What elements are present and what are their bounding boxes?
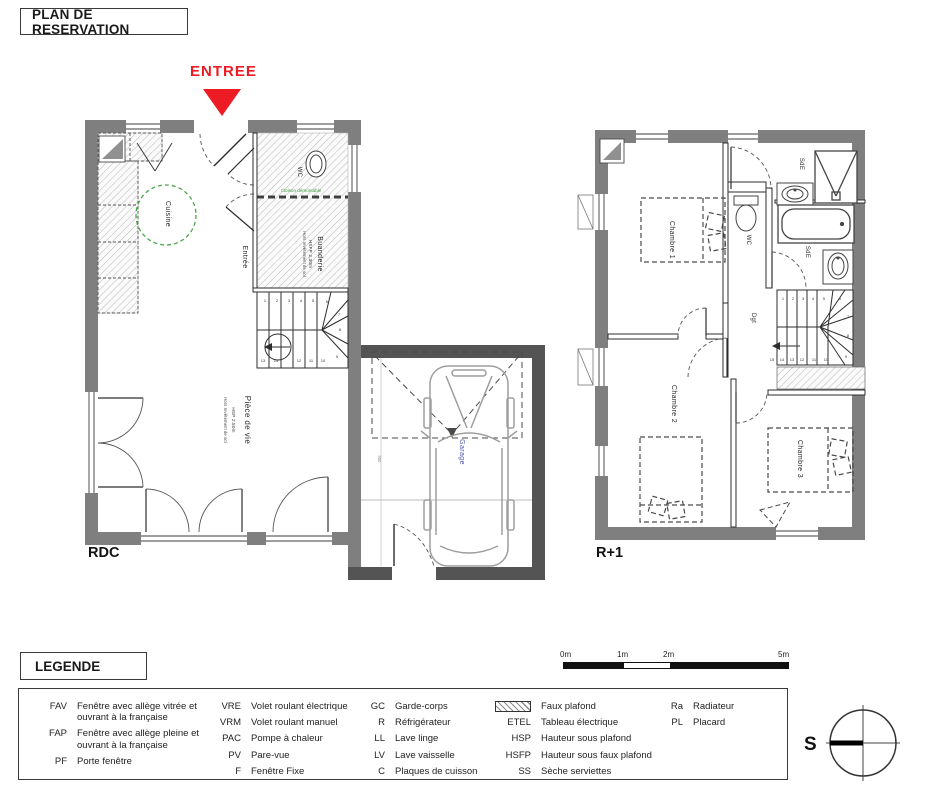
room-label-garage: Garage <box>458 439 465 465</box>
room-label-dgt: Dgt <box>750 313 756 323</box>
legend-abbr: Ra <box>661 701 683 712</box>
rdc-stairs: 1234567891011121314 <box>257 292 348 368</box>
scale-label-1m: 1m <box>617 650 628 659</box>
r1-plan: 123456789101112131415 <box>578 129 865 561</box>
legend-abbr: VRM <box>201 717 241 728</box>
buanderie-hsfp-note: HSFP 2.30m <box>308 240 313 268</box>
rdc-plan: Cloison démontable <box>84 119 545 581</box>
legend-abbr: FAP <box>33 728 67 750</box>
legend-abbr: SS <box>481 766 531 777</box>
legend-abbr: VRE <box>201 701 241 712</box>
legend-column-4: Faux plafond ETELTableau électrique HSPH… <box>481 701 691 777</box>
garage-interior <box>361 352 532 566</box>
r1-wc-toilet <box>734 196 758 231</box>
floor-label-rdc: RDC <box>88 545 120 561</box>
compass-south-label: S <box>804 734 817 755</box>
legend-column-2: VREVolet roulant électrique VRMVolet rou… <box>201 701 369 777</box>
legend-desc: Sèche serviettes <box>541 766 691 777</box>
shower <box>815 151 857 203</box>
r1-shutter-boxes <box>578 195 593 385</box>
scale-segment-1 <box>564 663 624 668</box>
r1-corner-marker <box>600 139 624 163</box>
scale-bar-graphic <box>563 662 789 669</box>
scale-segment-3 <box>670 663 788 668</box>
scale-bar: 0m 1m 2m 5m <box>563 650 791 674</box>
sde-sink-bottom <box>823 250 853 284</box>
compass-south-pointer <box>830 741 863 746</box>
legend-desc: Porte fenêtre <box>77 756 205 767</box>
legend-abbr: PAC <box>201 733 241 744</box>
scale-label-0m: 0m <box>560 650 571 659</box>
etel-marker <box>99 136 125 162</box>
stair-step-number: 13 <box>790 357 795 362</box>
bed-chambre2 <box>640 437 702 522</box>
scale-label-2m: 2m <box>663 650 674 659</box>
scale-label-5m: 5m <box>778 650 789 659</box>
room-label-chambre3: Chambre 3 <box>796 440 803 478</box>
legend-desc: Hauteur sous faux plafond <box>541 750 691 761</box>
stair-step-number: 12 <box>800 357 805 362</box>
floor-label-r1: R+1 <box>596 545 623 561</box>
legend-abbr: LL <box>351 733 385 744</box>
stair-step-number: 10 <box>824 357 829 362</box>
stair-step-number: 15 <box>770 357 775 362</box>
legend-column-1: FAVFenêtre avec allège vitrée et ouvrant… <box>33 701 205 767</box>
room-label-piece-de-vie: Pièce de vie <box>243 396 252 445</box>
faux-plafond-swatch-cell <box>481 701 531 712</box>
floor-plans-drawing: Cloison démontable <box>0 0 928 648</box>
room-label-wc-rdc: WC <box>296 167 302 178</box>
buanderie-sol-note: Hors revêtement de sol <box>302 231 307 277</box>
legend-abbr: HSP <box>481 733 531 744</box>
sde-sink-top <box>777 183 813 205</box>
car-top-view <box>421 366 517 566</box>
cloison-note: Cloison démontable <box>281 188 322 193</box>
legend-box: FAVFenêtre avec allège vitrée et ouvrant… <box>18 688 788 780</box>
r1-stairs: 123456789101112131415 <box>770 290 853 365</box>
legend-desc: Hauteur sous plafond <box>541 733 691 744</box>
garage-dimension: 500 <box>377 456 382 464</box>
legend-abbr: GC <box>351 701 385 712</box>
legend-desc: Radiateur <box>693 701 781 712</box>
bed-chambre3 <box>760 428 853 527</box>
room-label-sde-bottom: SdE <box>804 246 810 258</box>
legend-abbr: R <box>351 717 385 728</box>
bathtub <box>778 205 854 243</box>
legend-abbr: LV <box>351 750 385 761</box>
rdc-toilet <box>306 151 326 177</box>
legend-abbr: FAV <box>33 701 67 723</box>
plan-de-reservation-page: PLAN DE RESERVATION ENTREE <box>0 0 928 800</box>
bed-chambre1 <box>641 198 726 262</box>
compass: S <box>792 696 914 792</box>
legend-abbr: PF <box>33 756 67 767</box>
legend-desc: Fenêtre avec allège vitrée et ouvrant à … <box>77 701 205 723</box>
legend-abbr: ETEL <box>481 717 531 728</box>
legend-abbr: PL <box>661 717 683 728</box>
stair-step-number: 13 <box>261 358 266 363</box>
legend-abbr: C <box>351 766 385 777</box>
piece-hsp-note: HSP 2.50m <box>231 407 236 432</box>
legend-desc: Placard <box>693 717 781 728</box>
scale-segment-2 <box>624 663 670 668</box>
r1-stair-void-hatch <box>777 367 865 389</box>
room-label-wc-r1: WC <box>745 235 751 246</box>
legend-column-5: RaRadiateur PLPlacard <box>661 701 781 728</box>
legend-abbr: HSFP <box>481 750 531 761</box>
room-label-entree: Entrée <box>241 245 248 268</box>
room-label-cuisine: Cuisine <box>164 201 171 227</box>
stair-step-number: 14 <box>780 357 785 362</box>
legend-desc: Fenêtre avec allège pleine et ouvrant à … <box>77 728 205 750</box>
room-label-chambre1: Chambre 1 <box>668 221 675 259</box>
stair-step-number: 10 <box>321 358 326 363</box>
room-label-buanderie: Buanderie <box>316 236 323 272</box>
legend-abbr: F <box>201 766 241 777</box>
stair-step-number: 12 <box>297 358 302 363</box>
room-label-chambre2: Chambre 2 <box>670 385 677 423</box>
faux-plafond-swatch <box>495 701 531 712</box>
legend-title-text: LEGENDE <box>35 659 100 674</box>
room-label-sde-top: SdE <box>798 158 804 170</box>
legend-column-3: GCGarde-corps RRéfrigérateur LLLave ling… <box>351 701 501 777</box>
garage-walls <box>348 345 545 580</box>
piece-sol-note: Hors revêtement de sol <box>223 397 228 443</box>
stair-step-number: 14 <box>274 358 279 363</box>
legend-title: LEGENDE <box>20 652 147 680</box>
legend-abbr: PV <box>201 750 241 761</box>
